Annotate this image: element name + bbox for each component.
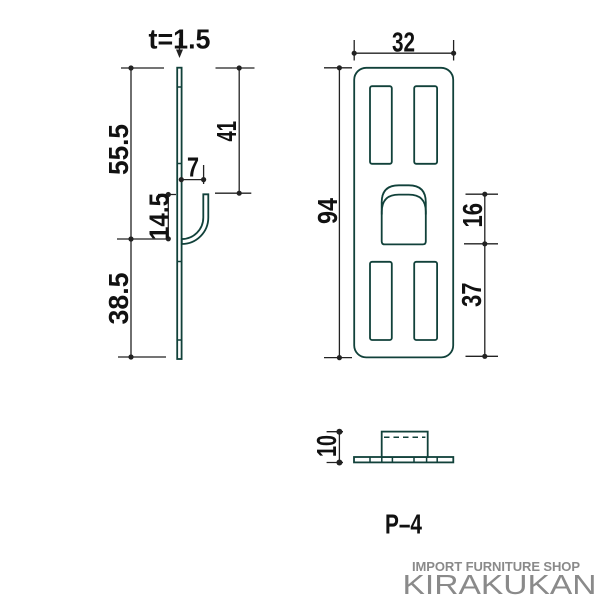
svg-text:10: 10 <box>311 435 342 457</box>
svg-text:P–4: P–4 <box>385 509 422 540</box>
svg-text:94: 94 <box>312 197 343 224</box>
svg-text:37: 37 <box>456 283 487 308</box>
svg-text:16: 16 <box>457 203 488 228</box>
svg-text:t=1.5: t=1.5 <box>149 24 211 55</box>
svg-text:32: 32 <box>392 27 415 58</box>
svg-text:7: 7 <box>187 152 199 183</box>
svg-text:41: 41 <box>211 121 242 142</box>
svg-text:KIRAKUKAN: KIRAKUKAN <box>403 569 597 600</box>
svg-text:14.5: 14.5 <box>144 193 175 240</box>
svg-text:55.5: 55.5 <box>103 124 134 175</box>
svg-text:38.5: 38.5 <box>103 273 134 325</box>
